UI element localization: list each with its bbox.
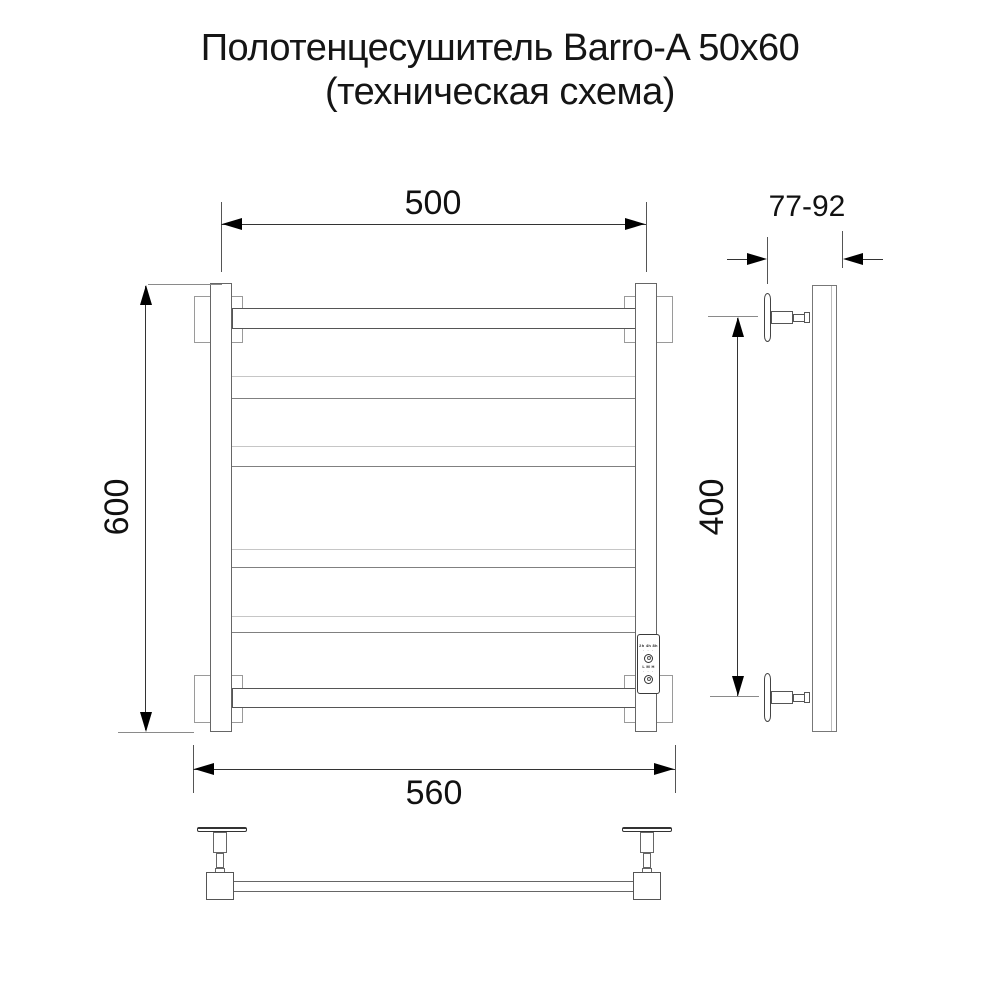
dim-600-tick-top [148,284,222,285]
side-top-bracket-collar [804,312,810,323]
technical-diagram-canvas: Полотенцесушитель Barro-A 50x60 (техниче… [0,0,1000,1000]
diagram-title-line2: (техническая схема) [0,70,1000,114]
dim-500-arrow-left-icon [222,218,242,230]
dim-560-extension-right [675,745,676,793]
dim-600-tick-bottom [118,732,194,733]
left-vertical-post [210,283,232,732]
control-panel-mode-leds: · · · [643,670,654,673]
dim-600-arrow-down-icon [140,712,152,732]
dim-560-label: 560 [384,774,484,813]
side-view-post-bar [812,285,837,732]
dim-600-line [145,286,146,730]
power-button-icon [644,675,653,684]
dim-500-line [221,224,646,225]
dim-500-arrow-right-icon [625,218,645,230]
control-panel-mode-label: L M H [642,665,654,669]
side-top-bracket-stem [771,311,793,324]
dim-77-92-label: 77-92 [747,190,867,224]
dim-500-extension-right [646,202,647,272]
dim-500-label: 500 [383,184,483,223]
dim-560-line [193,769,675,770]
side-bottom-bracket-stem [771,691,793,704]
rung-4-tube [232,549,636,568]
diagram-title-line1: Полотенцесушитель Barro-A 50x60 [0,26,1000,70]
dim-400-arrow-down-icon [732,676,744,696]
dim-77-92-extension-left [767,237,768,284]
dim-400-arrow-up-icon [732,317,744,337]
control-panel: 2h 4h 8h · · · L M H · · · [637,634,660,694]
dim-500-extension-left [221,202,222,272]
dim-77-92-leader-left [727,259,747,260]
dim-600-label: 600 [97,457,137,557]
bottom-view-left-stem-narrow [216,853,224,868]
bottom-view-right-stem [640,832,654,853]
dim-77-92-arrow-right-icon [747,253,767,265]
side-bottom-bracket-flange [764,673,771,722]
dim-77-92-leader-right [863,259,883,260]
side-bottom-bracket-collar [804,692,810,703]
bottom-view-right-stem-narrow [643,853,651,868]
dim-400-line [737,318,738,696]
bottom-view-tube [233,881,633,892]
side-top-bracket-flange [764,293,771,342]
timer-button-icon [644,654,653,663]
bottom-view-right-flange [622,827,672,832]
rung-2-tube [232,376,636,399]
bottom-view-left-stem [213,832,227,853]
dim-77-92-arrow-left-icon [843,253,863,265]
diagram-title: Полотенцесушитель Barro-A 50x60 (техниче… [0,26,1000,114]
bottom-view-left-flange [197,827,247,832]
control-panel-timer-leds: · · · [643,649,654,652]
rung-1-top-tube [232,308,636,329]
dim-400-tick-bottom [710,696,759,697]
rung-6-bottom-tube [232,688,636,708]
dim-400-label: 400 [692,457,732,557]
dim-560-arrow-left-icon [194,763,214,775]
bottom-view-right-block [633,872,661,900]
dim-400-tick-top [708,316,758,317]
rung-3-tube [232,446,636,467]
rung-5-tube [232,616,636,633]
side-view-post-inner-edge [831,286,832,731]
bottom-view-left-block [206,872,234,900]
control-panel-timer-label: 2h 4h 8h [639,644,658,648]
dim-560-arrow-right-icon [654,763,674,775]
dim-600-arrow-up-icon [140,285,152,305]
